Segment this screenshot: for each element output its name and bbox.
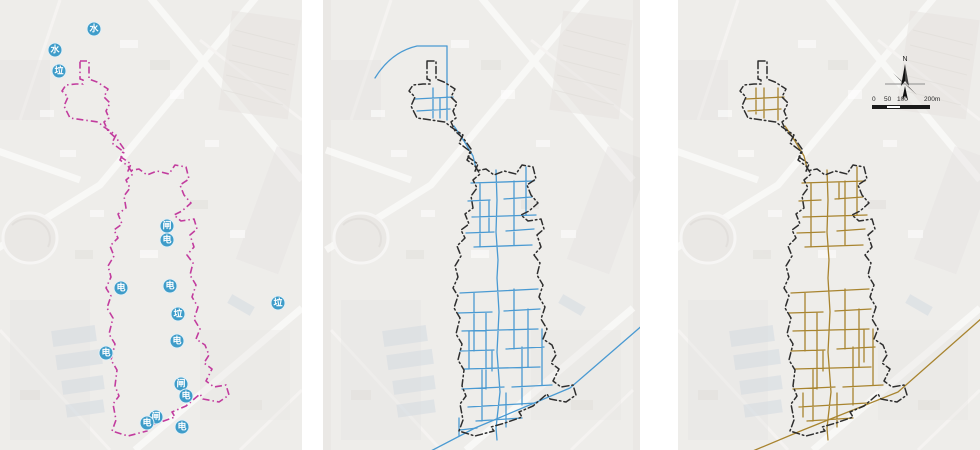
scale-segment <box>886 105 901 109</box>
facility-marker: 水 <box>48 43 63 58</box>
facility-marker: 闸 <box>160 219 175 234</box>
facility-marker-layer: 水水垃闸电电电垃垃电电闸电闸电电 <box>0 0 302 450</box>
facility-marker: 水 <box>87 22 102 37</box>
facility-marker: 电 <box>163 279 178 294</box>
panel-facility-map: 水水垃闸电电电垃垃电电闸电闸电电 <box>0 0 302 450</box>
facility-marker: 电 <box>140 416 155 431</box>
scale-label-100: 100 <box>897 96 908 103</box>
facility-marker: 电 <box>160 233 175 248</box>
satellite-basemap <box>678 0 980 450</box>
facility-marker: 垃 <box>52 64 67 79</box>
facility-marker: 垃 <box>271 296 286 311</box>
scale-label-50: 50 <box>884 96 891 103</box>
facility-marker: 电 <box>114 281 129 296</box>
scale-label-0: 0 <box>872 96 876 103</box>
panel-brown-network-map: N 0 50 100 200m <box>678 0 980 450</box>
scale-segment <box>901 105 930 109</box>
scale-label-200m: 200m <box>924 96 940 103</box>
scale-bar-segments <box>872 105 938 109</box>
scale-bar-labels: 0 50 100 200m <box>872 96 938 104</box>
scale-segment <box>872 105 886 109</box>
facility-marker: 电 <box>170 334 185 349</box>
satellite-basemap <box>323 0 640 450</box>
map-figure: 水水垃闸电电电垃垃电电闸电闸电电 N <box>0 0 980 450</box>
scale-bar: 0 50 100 200m <box>872 96 938 112</box>
facility-marker: 电 <box>175 420 190 435</box>
facility-marker: 电 <box>99 346 114 361</box>
panel-blue-network-map <box>323 0 640 450</box>
facility-marker: 电 <box>179 389 194 404</box>
facility-marker: 垃 <box>171 307 186 322</box>
compass-north-label: N <box>902 56 907 63</box>
